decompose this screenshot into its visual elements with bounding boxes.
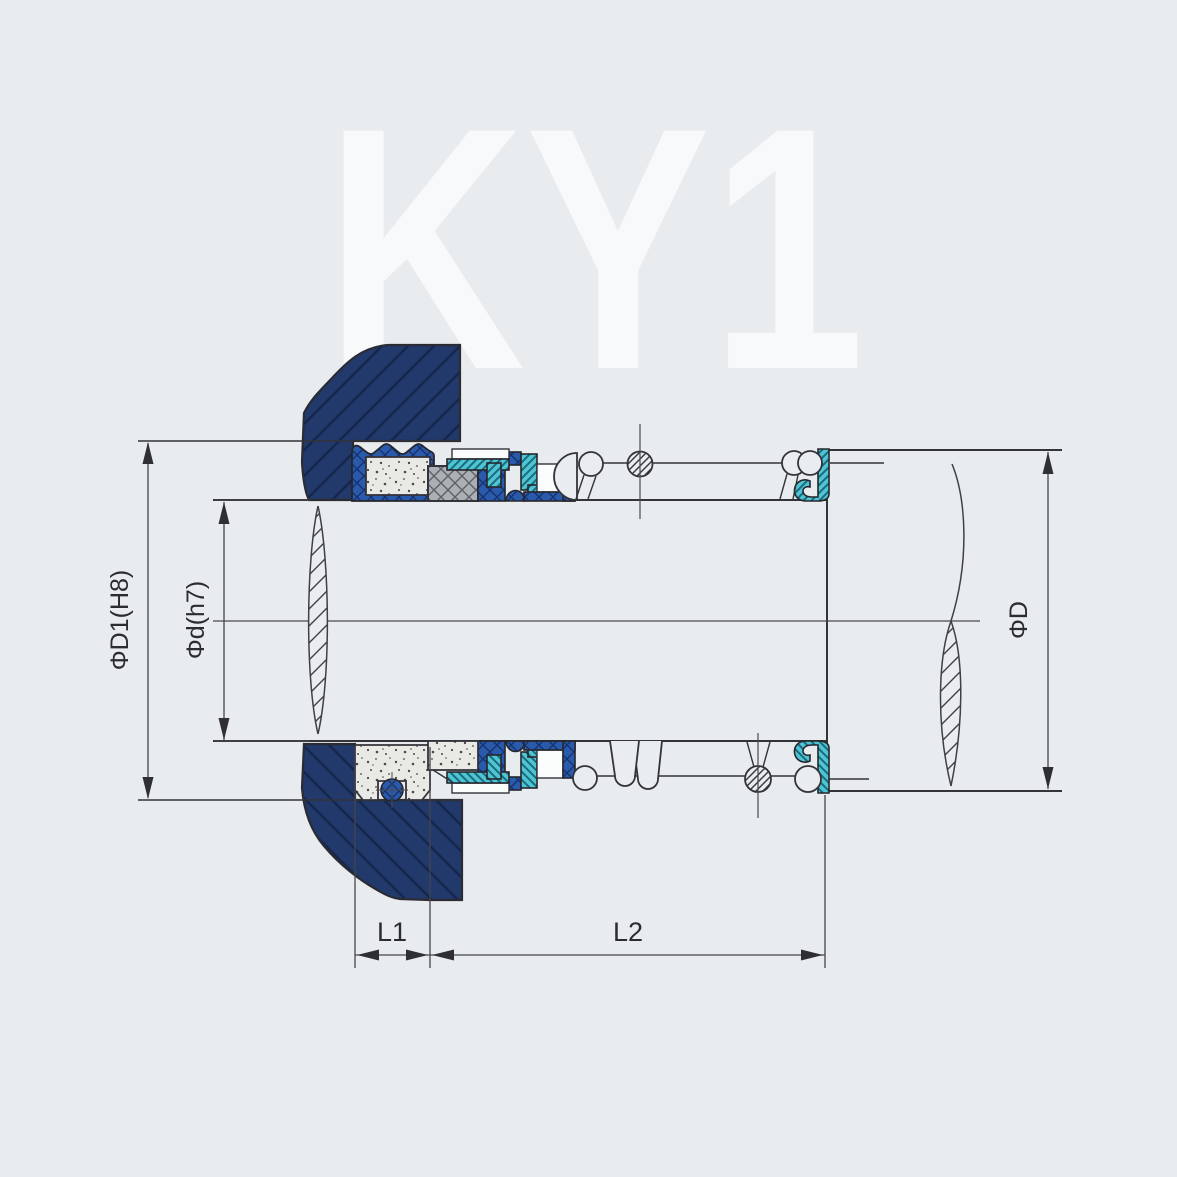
spring-coil-section (795, 766, 821, 792)
rotating-face-bottom (428, 741, 478, 770)
label-bore-diameter: ΦD1(H8) (106, 570, 134, 671)
label-length-2: L2 (613, 917, 643, 947)
seal-cross-section-diagram: KY1 (0, 0, 1177, 1177)
drive-band (452, 449, 509, 459)
seal-drawing-page: KY1 (0, 0, 1177, 1177)
bellows-teal-pocket (487, 463, 501, 487)
label-length-1: L1 (377, 917, 407, 947)
label-shaft-diameter: Φd(h7) (182, 581, 210, 659)
rotating-face-top (428, 466, 478, 501)
stationary-seat-cup-assembly (352, 444, 434, 501)
label-outer-diameter: ΦD (1005, 601, 1033, 639)
spring-coil-section (573, 766, 597, 790)
stationary-seat-oring-assembly (355, 745, 430, 808)
spring-coil-section (798, 451, 822, 475)
stationary-face-top (366, 457, 430, 495)
spring-coil-section (579, 452, 603, 476)
